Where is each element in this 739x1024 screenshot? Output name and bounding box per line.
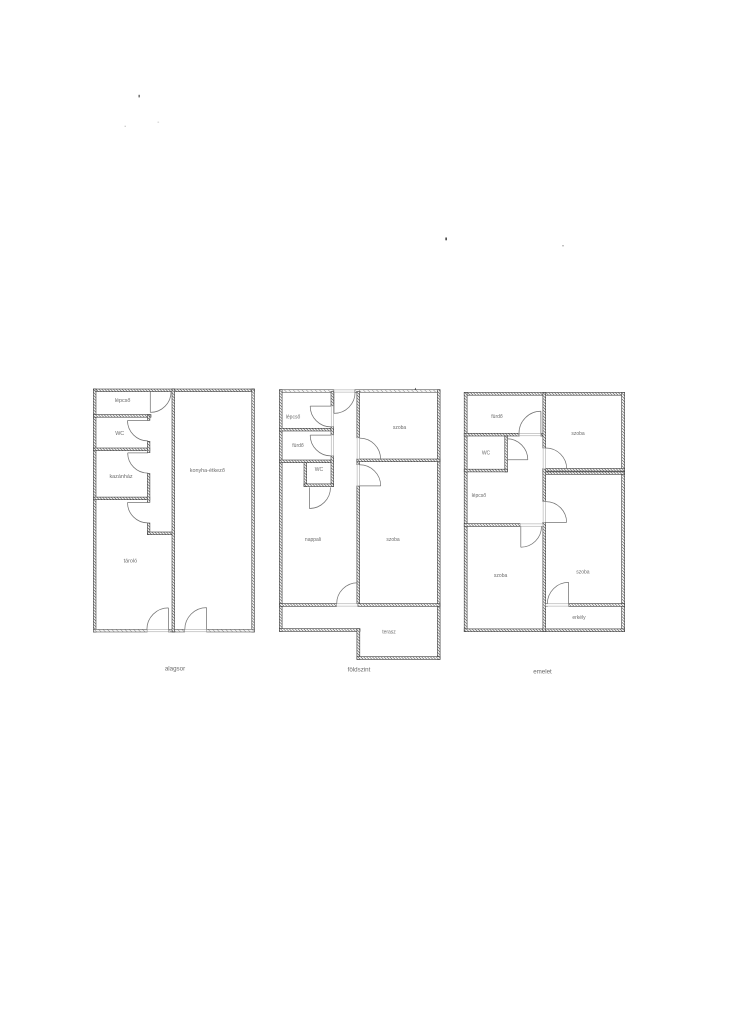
svg-text:alagsor: alagsor — [165, 666, 185, 673]
svg-text:WC: WC — [315, 467, 324, 473]
svg-text:fürdő: fürdő — [491, 414, 503, 420]
svg-text:lépcső: lépcső — [472, 493, 487, 499]
svg-text:erkély: erkély — [572, 615, 586, 621]
svg-text:emelet: emelet — [533, 669, 552, 676]
svg-text:szoba: szoba — [393, 425, 407, 431]
svg-text:fürdő: fürdő — [292, 443, 304, 449]
svg-text:terasz: terasz — [382, 630, 396, 636]
svg-text:lépcső: lépcső — [286, 414, 301, 420]
svg-text:WC: WC — [115, 431, 124, 437]
svg-text:tároló: tároló — [124, 559, 138, 565]
svg-text:kazánház: kazánház — [109, 474, 132, 480]
svg-text:földszint: földszint — [348, 667, 371, 674]
svg-text:WC: WC — [482, 451, 491, 457]
svg-text:szoba: szoba — [386, 537, 400, 543]
svg-text:lépcső: lépcső — [115, 398, 131, 404]
svg-text:konyha-étkező: konyha-étkező — [190, 468, 225, 474]
svg-text:nappali: nappali — [305, 537, 321, 543]
svg-text:szoba: szoba — [571, 431, 585, 437]
svg-text:szoba: szoba — [494, 573, 508, 579]
svg-text:szoba: szoba — [576, 570, 590, 576]
